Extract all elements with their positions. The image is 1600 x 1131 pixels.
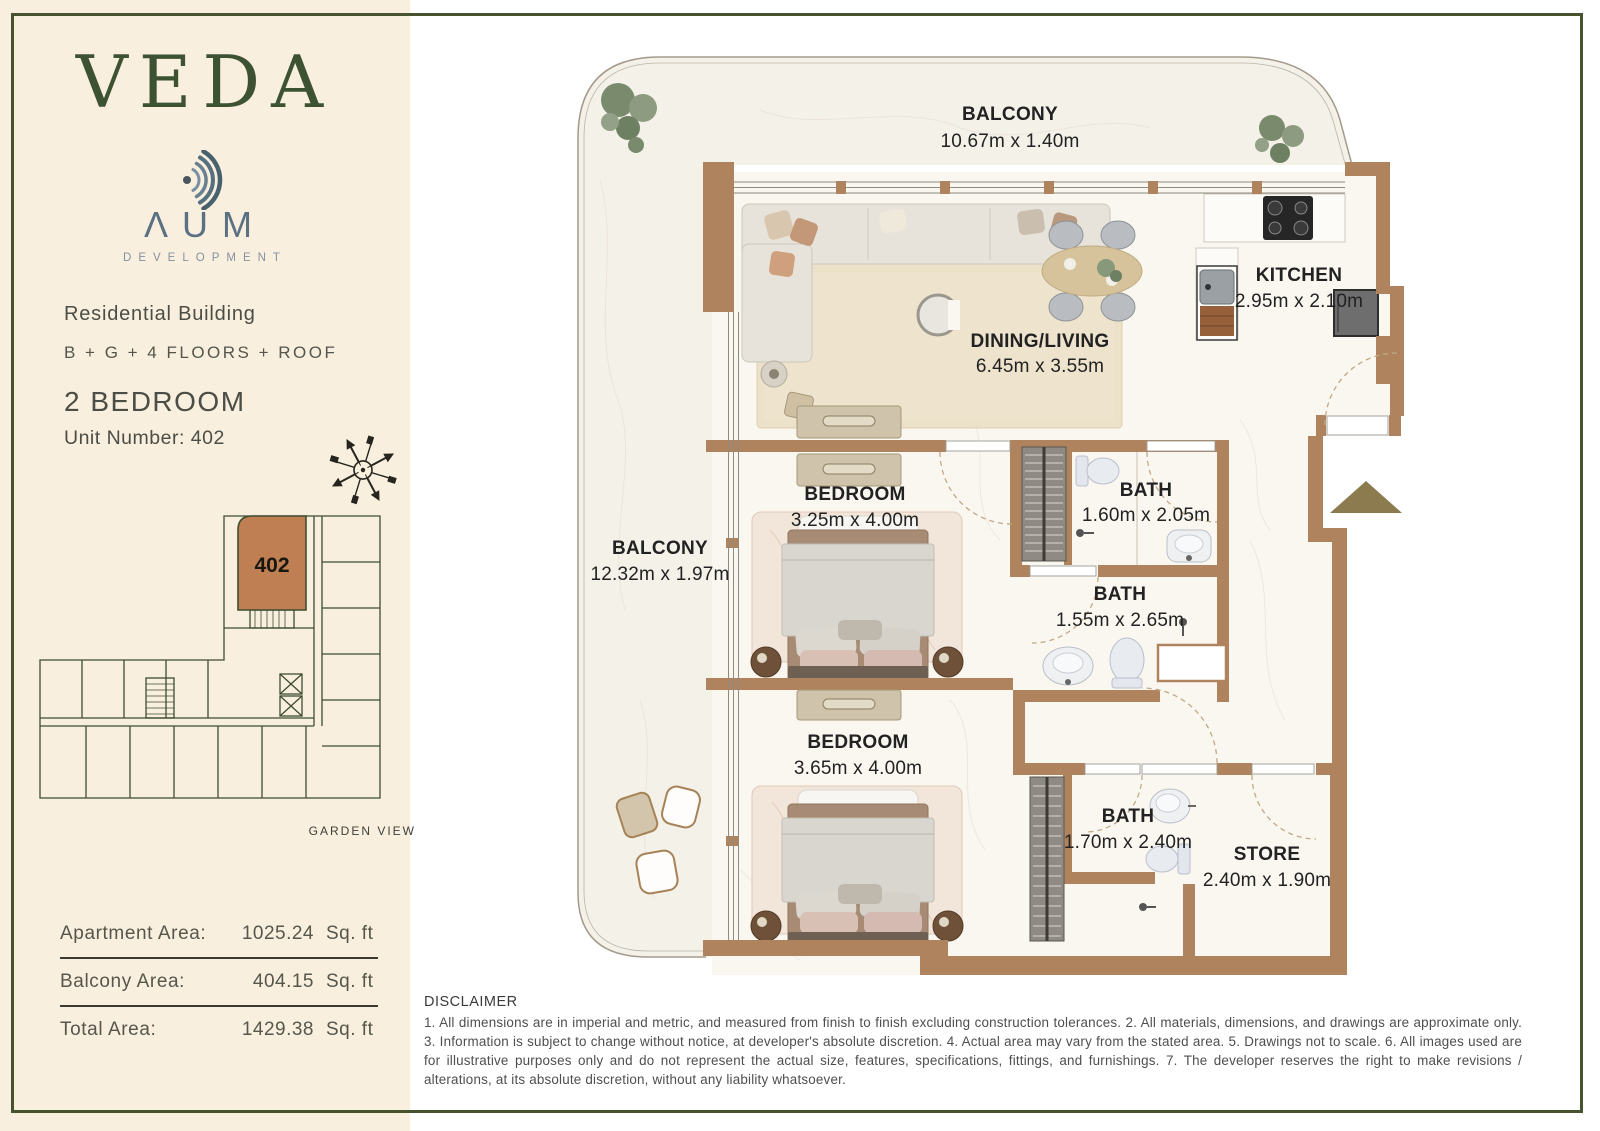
- room-dims-balcony-left: 12.32m x 1.97m: [590, 564, 729, 585]
- floor-plan: BALCONY 10.67m x 1.40m KITCHEN 2.95m x 2…: [540, 30, 1600, 985]
- bedroom-1-furniture: [751, 512, 963, 682]
- floors-label: B + G + 4 FLOORS + ROOF: [64, 343, 337, 363]
- entry-arrow: [1330, 481, 1402, 513]
- bedroom-2-furniture: [751, 786, 963, 945]
- area-label: Apartment Area:: [60, 923, 206, 945]
- area-table: Apartment Area: 1025.24 Sq. ft Balcony A…: [60, 911, 378, 1053]
- aum-logo-subtitle: DEVELOPMENT: [0, 252, 410, 264]
- area-unit: Sq. ft: [326, 971, 378, 993]
- disclaimer-title: DISCLAIMER: [424, 994, 1522, 1010]
- nightstand: [933, 911, 963, 941]
- room-dims-bedroom-1: 3.25m x 4.00m: [791, 510, 919, 531]
- nightstand: [933, 647, 963, 677]
- room-dims-bath-3: 1.70m x 2.40m: [1064, 832, 1192, 853]
- balcony-chair: [635, 849, 679, 895]
- table-row-total-area: Total Area: 1429.38 Sq. ft: [60, 1007, 378, 1053]
- key-plan-unit-number: 402: [254, 554, 289, 577]
- dining-table: [1042, 246, 1142, 296]
- toilet: [1076, 456, 1088, 486]
- veda-logo: VEDA: [0, 40, 410, 124]
- compass-icon: [325, 432, 401, 508]
- room-dims-kitchen: 2.95m x 2.10m: [1235, 291, 1363, 312]
- area-unit: Sq. ft: [326, 923, 378, 945]
- garden-view-label: GARDEN VIEW: [240, 824, 416, 838]
- room-label-bedroom-1: BEDROOM: [804, 484, 905, 505]
- room-label-bedroom-2: BEDROOM: [807, 732, 908, 753]
- room-dims-dining-living: 6.45m x 3.55m: [976, 356, 1104, 377]
- toilet: [1110, 638, 1144, 682]
- laundry-tap: [1139, 903, 1147, 911]
- room-label-store: STORE: [1234, 844, 1301, 865]
- area-value: 404.15: [185, 971, 314, 993]
- nightstand: [751, 911, 781, 941]
- table-row-apartment-area: Apartment Area: 1025.24 Sq. ft: [60, 911, 378, 959]
- brochure-page: VEDA ΛUM DEVELOPMENT Residential Buildin…: [0, 0, 1600, 1131]
- disclaimer: DISCLAIMER 1. All dimensions are in impe…: [424, 994, 1522, 1090]
- table-row-balcony-area: Balcony Area: 404.15 Sq. ft: [60, 959, 378, 1007]
- room-dims-balcony-top: 10.67m x 1.40m: [940, 131, 1079, 152]
- building-type-label: Residential Building: [64, 303, 256, 326]
- sidebar: VEDA ΛUM DEVELOPMENT Residential Buildin…: [0, 0, 410, 1131]
- room-dims-bath-1: 1.60m x 2.05m: [1082, 505, 1210, 526]
- room-dims-store: 2.40m x 1.90m: [1203, 870, 1331, 891]
- key-plan: 402: [28, 498, 413, 813]
- room-dims-bath-2: 1.55m x 2.65m: [1056, 610, 1184, 631]
- room-label-bath-1: BATH: [1120, 480, 1173, 501]
- kitchen-drawers: [1200, 306, 1234, 336]
- room-label-bath-2: BATH: [1094, 584, 1147, 605]
- room-label-kitchen: KITCHEN: [1256, 265, 1343, 286]
- area-value: 1025.24: [206, 923, 314, 945]
- dining-chair: [1049, 221, 1083, 249]
- room-label-bath-3: BATH: [1102, 806, 1155, 827]
- nightstand: [751, 647, 781, 677]
- aum-logo-text: ΛUM: [0, 204, 410, 246]
- area-unit: Sq. ft: [326, 1019, 378, 1041]
- room-dims-bedroom-2: 3.65m x 4.00m: [794, 758, 922, 779]
- aum-logo-icon: [152, 150, 238, 210]
- area-label: Total Area:: [60, 1019, 156, 1041]
- room-label-balcony-left: BALCONY: [612, 538, 708, 559]
- shower-head: [1076, 529, 1084, 537]
- unit-number-label: Unit Number: 402: [64, 427, 225, 450]
- area-label: Balcony Area:: [60, 971, 185, 993]
- room-label-balcony-top: BALCONY: [962, 104, 1058, 125]
- room-label-dining-living: DINING/LIVING: [970, 331, 1109, 352]
- bathtub-niche: [1158, 645, 1226, 681]
- unit-type-label: 2 BEDROOM: [64, 386, 246, 418]
- disclaimer-body: 1. All dimensions are in imperial and me…: [424, 1013, 1522, 1090]
- area-value: 1429.38: [156, 1019, 314, 1041]
